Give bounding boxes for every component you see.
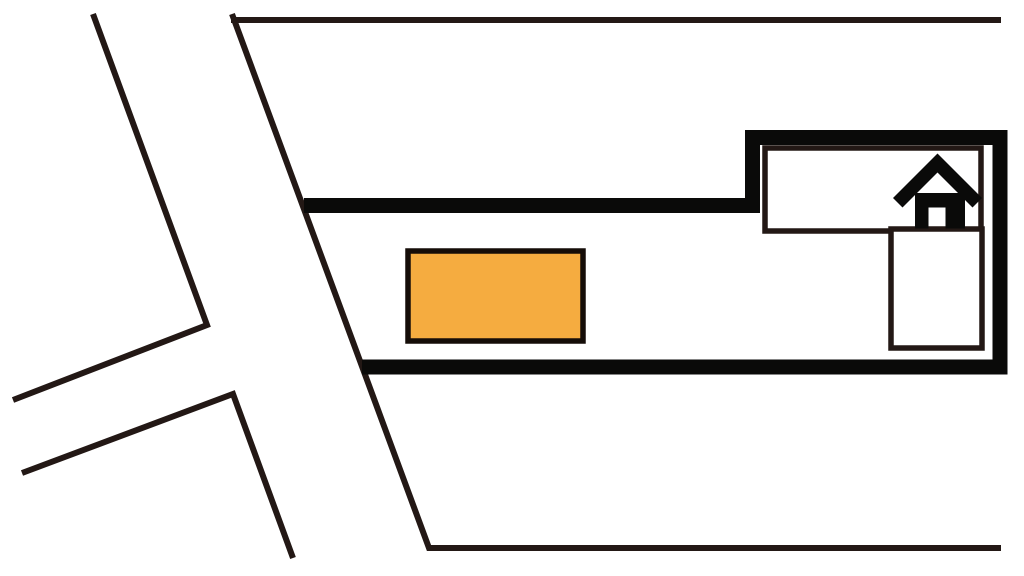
- location-map: [0, 0, 1024, 576]
- main-road-edge-line: [232, 14, 1001, 548]
- map-canvas: [0, 0, 1024, 576]
- building-lower-wing: [891, 229, 982, 348]
- parking-space-highlight: [408, 251, 583, 341]
- road-fork-lower-line: [22, 394, 293, 558]
- road-fork-upper-line: [13, 14, 207, 400]
